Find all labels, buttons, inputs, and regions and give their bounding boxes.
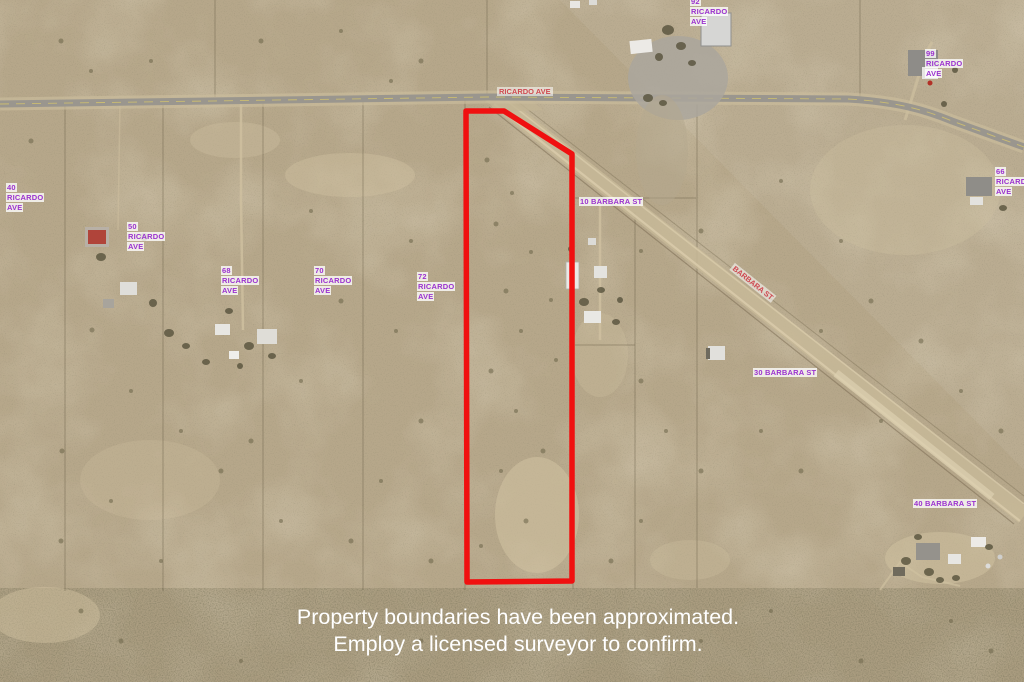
- address-label-text: 68 RICARDO AVE: [221, 266, 259, 295]
- address-label-92-ricardo-ave: 92 RICARDO AVE: [690, 0, 738, 26]
- address-label-10-barbara-st: 10 BARBARA ST: [579, 197, 643, 207]
- address-label-30-barbara-st: 30 BARBARA ST: [753, 368, 817, 378]
- address-label-text: 40 BARBARA ST: [913, 499, 977, 508]
- address-label-50-ricardo-ave: 50 RICARDO AVE: [127, 222, 175, 251]
- address-label-text: 70 RICARDO AVE: [314, 266, 352, 295]
- address-label-text: 30 BARBARA ST: [753, 368, 817, 377]
- address-label-70-ricardo-ave: 70 RICARDO AVE: [314, 266, 362, 295]
- address-label-text: 40 RICARDO AVE: [6, 183, 44, 212]
- address-label-text: 50 RICARDO AVE: [127, 222, 165, 251]
- address-label-text: 66 RICARDO AVE: [995, 167, 1024, 196]
- address-label-66-ricardo-ave: 66 RICARDO AVE: [995, 167, 1024, 196]
- address-label-40-barbara-st: 40 BARBARA ST: [913, 499, 977, 509]
- aerial-map: RICARDO AVE BARBARA ST 92 RICARDO AVE 99…: [0, 0, 1024, 682]
- address-label-text: 10 BARBARA ST: [579, 197, 643, 206]
- disclaimer-text: Property boundaries have been approximat…: [6, 604, 1024, 657]
- address-label-text: 92 RICARDO AVE: [690, 0, 728, 26]
- disclaimer-line-2: Employ a licensed surveyor to confirm.: [6, 631, 1024, 658]
- address-label-99-ricardo-ave: 99 RICARDO AVE: [925, 49, 973, 78]
- address-label-text: 72 RICARDO AVE: [417, 272, 455, 301]
- address-label-72-ricardo-ave: 72 RICARDO AVE: [417, 272, 465, 301]
- address-label-68-ricardo-ave: 68 RICARDO AVE: [221, 266, 269, 295]
- disclaimer-line-1: Property boundaries have been approximat…: [6, 604, 1024, 631]
- address-label-text: 99 RICARDO AVE: [925, 49, 963, 78]
- road-label-ricardo-ave: RICARDO AVE: [497, 87, 553, 96]
- satellite-imagery: [0, 0, 1024, 682]
- address-label-40-ricardo-ave: 40 RICARDO AVE: [6, 183, 54, 212]
